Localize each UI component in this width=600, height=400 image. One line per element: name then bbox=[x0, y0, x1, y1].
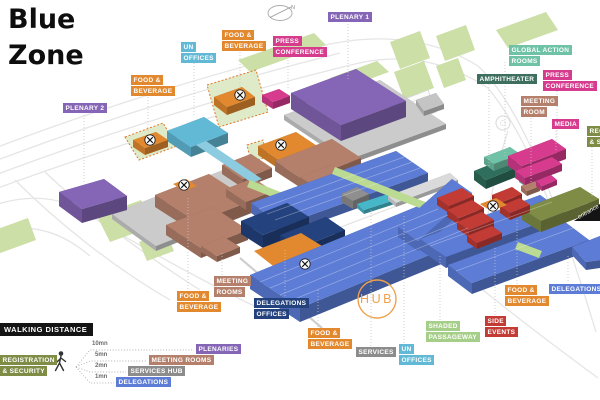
food-court-icon bbox=[276, 140, 286, 150]
walking-person-icon bbox=[56, 351, 66, 370]
legend-graphics bbox=[47, 350, 194, 383]
venue-map-canvas: HUBentranceN bbox=[0, 0, 600, 400]
food-court-icon bbox=[235, 90, 245, 100]
food-court-icon bbox=[300, 259, 310, 269]
page-title: Blue Zone bbox=[8, 2, 84, 74]
venue-map-page: HUBentranceN Blue Zone PLENARY 2FOOD &BE… bbox=[0, 0, 600, 400]
food-court-icon bbox=[488, 201, 498, 211]
page-title-line2: Zone bbox=[8, 38, 84, 74]
compass-north-icon: N bbox=[268, 5, 295, 21]
roundabout-north bbox=[496, 116, 510, 130]
svg-text:N: N bbox=[291, 5, 295, 11]
food-court-icon bbox=[145, 135, 155, 145]
svg-text:HUB: HUB bbox=[360, 292, 394, 306]
food-court-icon bbox=[179, 180, 189, 190]
page-title-line1: Blue bbox=[8, 2, 84, 38]
